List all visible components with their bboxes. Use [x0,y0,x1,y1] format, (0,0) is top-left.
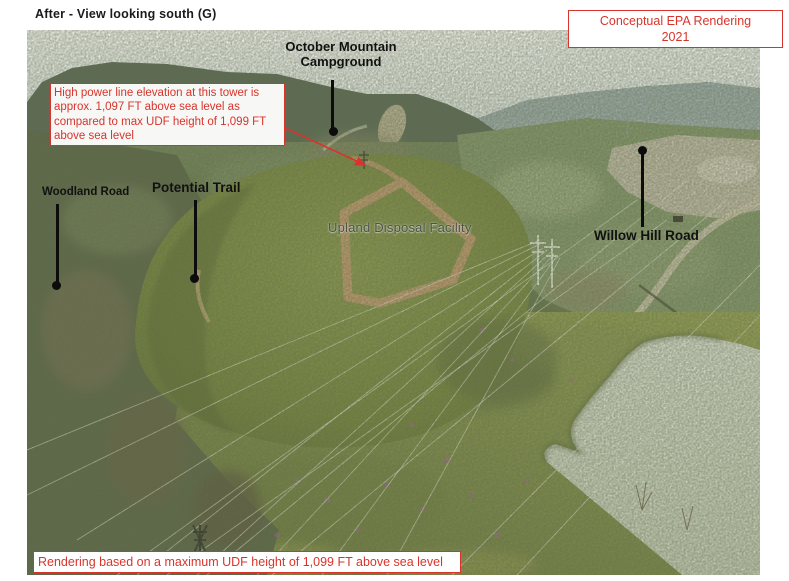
rendering-stamp-box: Conceptual EPA Rendering 2021 [568,10,783,48]
page-title: After - View looking south (G) [35,7,216,21]
label-upland-disposal-facility: Upland Disposal Facility [328,220,472,235]
stamp-line2: 2021 [569,29,782,45]
label-willow-hill-road: Willow Hill Road [594,228,699,243]
label-woodland-road: Woodland Road [42,186,129,198]
pointer-line-potential-trail [194,200,197,277]
elevation-callout-text: High power line elevation at this tower … [54,87,266,142]
footer-note-box: Rendering based on a maximum UDF height … [33,551,461,573]
elevation-arrow [280,120,375,172]
label-october-mountain-campground: October Mountain Campground [268,40,414,70]
pointer-line-woodland-road [56,204,59,284]
pointer-dot-potential-trail [190,274,199,283]
elevation-callout-box: High power line elevation at this tower … [50,83,285,146]
pointer-dot-woodland-road [52,281,61,290]
stamp-line1: Conceptual EPA Rendering [569,13,782,29]
pointer-line-willow-hill-road [641,154,644,227]
label-potential-trail: Potential Trail [152,180,241,195]
footer-note-text: Rendering based on a maximum UDF height … [38,555,443,569]
